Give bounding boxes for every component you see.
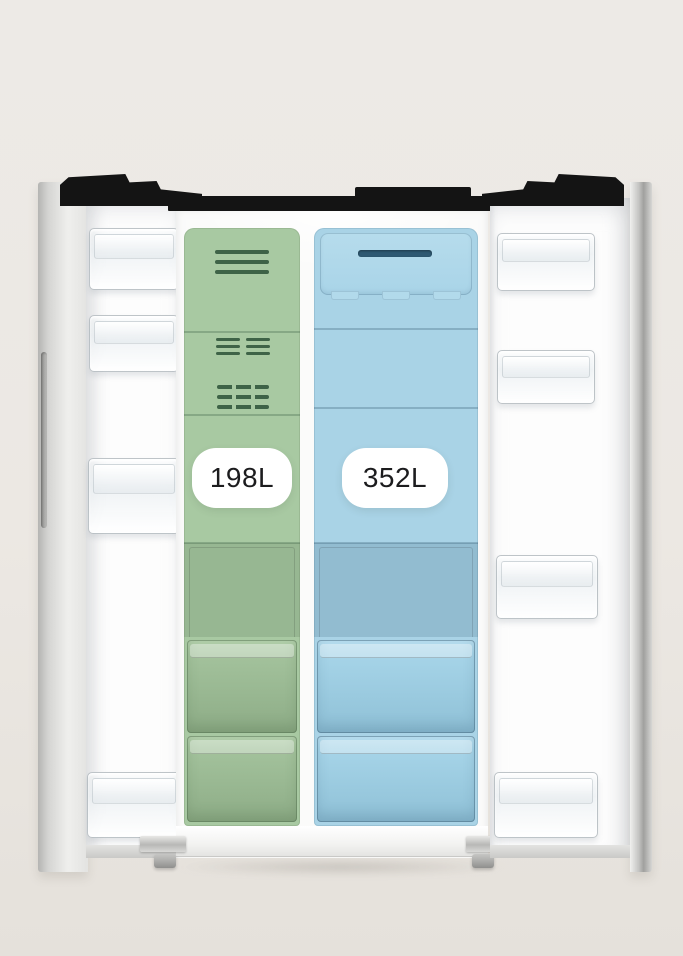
- door-bin: [88, 458, 180, 534]
- freezer-capacity-badge: 198L: [192, 448, 292, 508]
- freezer-vent-grille: [215, 260, 269, 264]
- freezer-capacity-label: 198L: [210, 462, 274, 494]
- freezer-vent-grille: [217, 405, 269, 409]
- door-bin: [497, 233, 595, 291]
- right-door-exterior-edge: [630, 182, 652, 872]
- freezer-vent-grille: [217, 395, 269, 399]
- fridge-drawer: [317, 736, 475, 822]
- door-bin: [497, 350, 595, 404]
- freezer-vent-grille: [246, 345, 270, 348]
- cabinet-top-hinge-cover: [355, 187, 471, 198]
- freezer-vent-grille: [216, 352, 240, 355]
- cabinet-top-trim: [168, 196, 496, 211]
- fridge-shelf-line: [314, 328, 478, 330]
- fridge-icebox-panel: [320, 233, 472, 295]
- fridge-drawer-cavity: [314, 543, 478, 637]
- freezer-vent-grille: [215, 270, 269, 274]
- right-door-top-trim: [482, 174, 624, 206]
- cabinet-base: [176, 826, 488, 857]
- freezer-shelf-line: [184, 331, 300, 333]
- fridge-icebox-tab: [382, 291, 410, 300]
- bottom-hinge: [140, 836, 186, 852]
- fridge-capacity-label: 352L: [363, 462, 427, 494]
- freezer-vent-grille: [217, 385, 269, 389]
- fridge-icebox-tab: [433, 291, 461, 300]
- left-door-handle: [41, 352, 47, 528]
- product-image-refrigerator: 198L 352L: [0, 0, 683, 956]
- fridge-icebox-tab: [331, 291, 359, 300]
- freezer-shelf-line: [184, 414, 300, 416]
- freezer-drawer-cavity: [184, 543, 300, 637]
- door-bin: [494, 772, 598, 838]
- freezer-vent-grille: [216, 345, 240, 348]
- fridge-vent-slot: [358, 250, 432, 257]
- leveling-foot: [154, 854, 176, 868]
- door-bin: [89, 228, 179, 290]
- right-door-bottom-edge: [490, 845, 630, 858]
- freezer-vent-grille: [215, 250, 269, 254]
- door-bin: [87, 772, 181, 838]
- door-bin: [496, 555, 598, 619]
- fridge-drawer: [317, 640, 475, 733]
- freezer-drawer: [187, 640, 297, 733]
- freezer-vent-grille: [216, 338, 240, 341]
- right-door-interior: [490, 198, 630, 858]
- freezer-vent-grille: [246, 352, 270, 355]
- fridge-capacity-badge: 352L: [342, 448, 448, 508]
- door-bin: [89, 315, 179, 372]
- freezer-drawer: [187, 736, 297, 822]
- freezer-vent-grille: [246, 338, 270, 341]
- fridge-shelf-line: [314, 407, 478, 409]
